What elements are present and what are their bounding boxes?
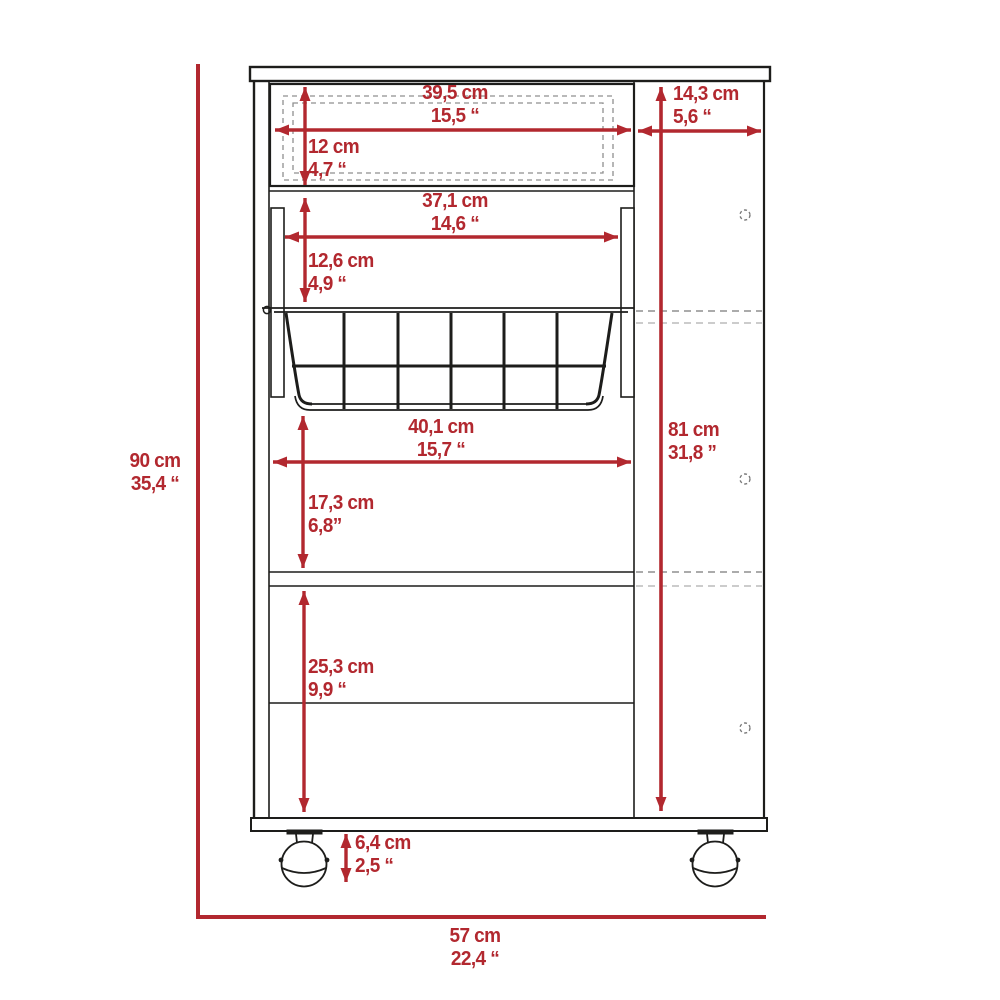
interior-height-cm: 81 cm	[668, 419, 719, 442]
label-interior-height: 81 cm 31,8 ”	[668, 419, 722, 465]
panel-hole-top	[740, 210, 750, 220]
opening-width-cm: 37,1 cm	[379, 190, 531, 213]
label-overall-width: 57 cm 22,4 “	[410, 925, 540, 971]
overall-height-in: 35,4 “	[122, 473, 189, 496]
basket-left-wall	[286, 313, 312, 404]
side-depth-in: 5,6 “	[673, 106, 739, 129]
caster-height-in: 2,5 “	[355, 855, 411, 878]
overall-width-cm: 57 cm	[413, 925, 537, 948]
basket-width-in: 15,7 “	[379, 439, 503, 462]
lower-section-height-in: 9,9 “	[308, 679, 374, 702]
label-drawer-width: 39,5 cm 15,5 “	[375, 82, 535, 128]
caster-right-axle-r	[736, 858, 741, 863]
basket-right-wall	[586, 313, 612, 404]
label-side-depth: 14,3 cm 5,6 “	[673, 83, 742, 129]
bottom-panel	[251, 818, 767, 831]
drawer-height-cm: 12 cm	[308, 136, 359, 159]
shelf-gap-height-cm: 17,3 cm	[308, 492, 374, 515]
label-opening-width: 37,1 cm 14,6 “	[375, 190, 535, 236]
basket-width-cm: 40,1 cm	[379, 416, 503, 439]
dimension-diagram: 39,5 cm 15,5 “ 14,3 cm 5,6 “ 12 cm 4,7 “…	[0, 0, 1000, 1000]
label-basket-section-height: 12,6 cm 4,9 “	[308, 250, 377, 296]
lower-section-height-cm: 25,3 cm	[308, 656, 374, 679]
basket-section-height-in: 4,9 “	[308, 273, 374, 296]
drawer-width-in: 15,5 “	[379, 105, 531, 128]
label-shelf-gap-height: 17,3 cm 6,8”	[308, 492, 377, 538]
drawer-width-cm: 39,5 cm	[379, 82, 531, 105]
caster-right-axle-l	[690, 858, 695, 863]
interior-height-in: 31,8 ”	[668, 442, 719, 465]
label-drawer-height: 12 cm 4,7 “	[308, 136, 362, 182]
shelf-gap-height-in: 6,8”	[308, 515, 374, 538]
furniture-diagram-svg	[0, 0, 1000, 1000]
caster-left-axle-l	[279, 858, 284, 863]
caster-right-wheel	[693, 842, 738, 887]
panel-hole-bottom	[740, 723, 750, 733]
overall-height-cm: 90 cm	[122, 450, 189, 473]
caster-height-cm: 6,4 cm	[355, 832, 411, 855]
caster-right-plate	[698, 830, 733, 834]
drawer-height-in: 4,7 “	[308, 159, 359, 182]
opening-width-in: 14,6 “	[379, 213, 531, 236]
label-overall-height: 90 cm 35,4 “	[120, 450, 190, 496]
basket-section-height-cm: 12,6 cm	[308, 250, 374, 273]
caster-left-wheel	[282, 842, 327, 887]
top-panel	[250, 67, 770, 81]
right-slide-rail	[621, 208, 634, 397]
panel-hole-middle	[740, 474, 750, 484]
left-slide-rail	[271, 208, 284, 397]
overall-width-in: 22,4 “	[413, 948, 537, 971]
side-depth-cm: 14,3 cm	[673, 83, 739, 106]
label-basket-width: 40,1 cm 15,7 “	[376, 416, 506, 462]
caster-left-plate	[287, 830, 322, 834]
label-lower-section-height: 25,3 cm 9,9 “	[308, 656, 377, 702]
caster-right	[690, 830, 741, 887]
label-caster-height: 6,4 cm 2,5 “	[355, 832, 414, 878]
caster-left-axle-r	[325, 858, 330, 863]
caster-left	[279, 830, 330, 887]
